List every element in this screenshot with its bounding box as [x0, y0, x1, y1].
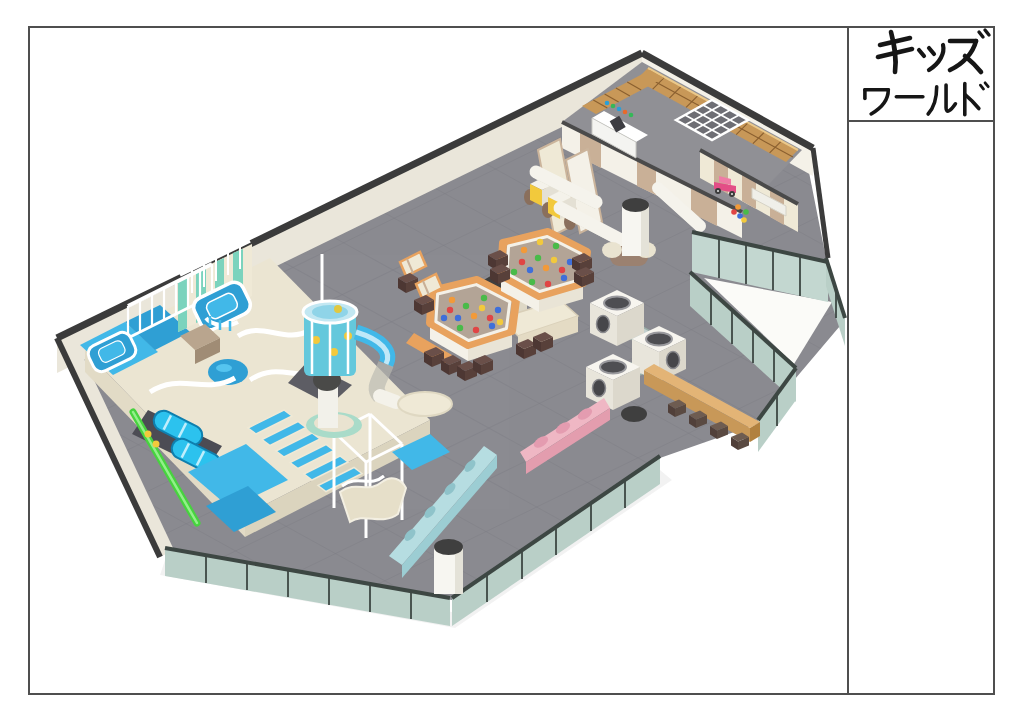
- slide-exit-mat: [398, 392, 452, 416]
- title-glyphs: [849, 26, 995, 120]
- title-column-divider: [847, 26, 849, 695]
- column: [434, 539, 463, 594]
- title-block: キッズ ワールド: [849, 26, 995, 122]
- column-cap: [621, 406, 647, 422]
- drawing-sheet: キッズ ワールド: [0, 0, 1024, 724]
